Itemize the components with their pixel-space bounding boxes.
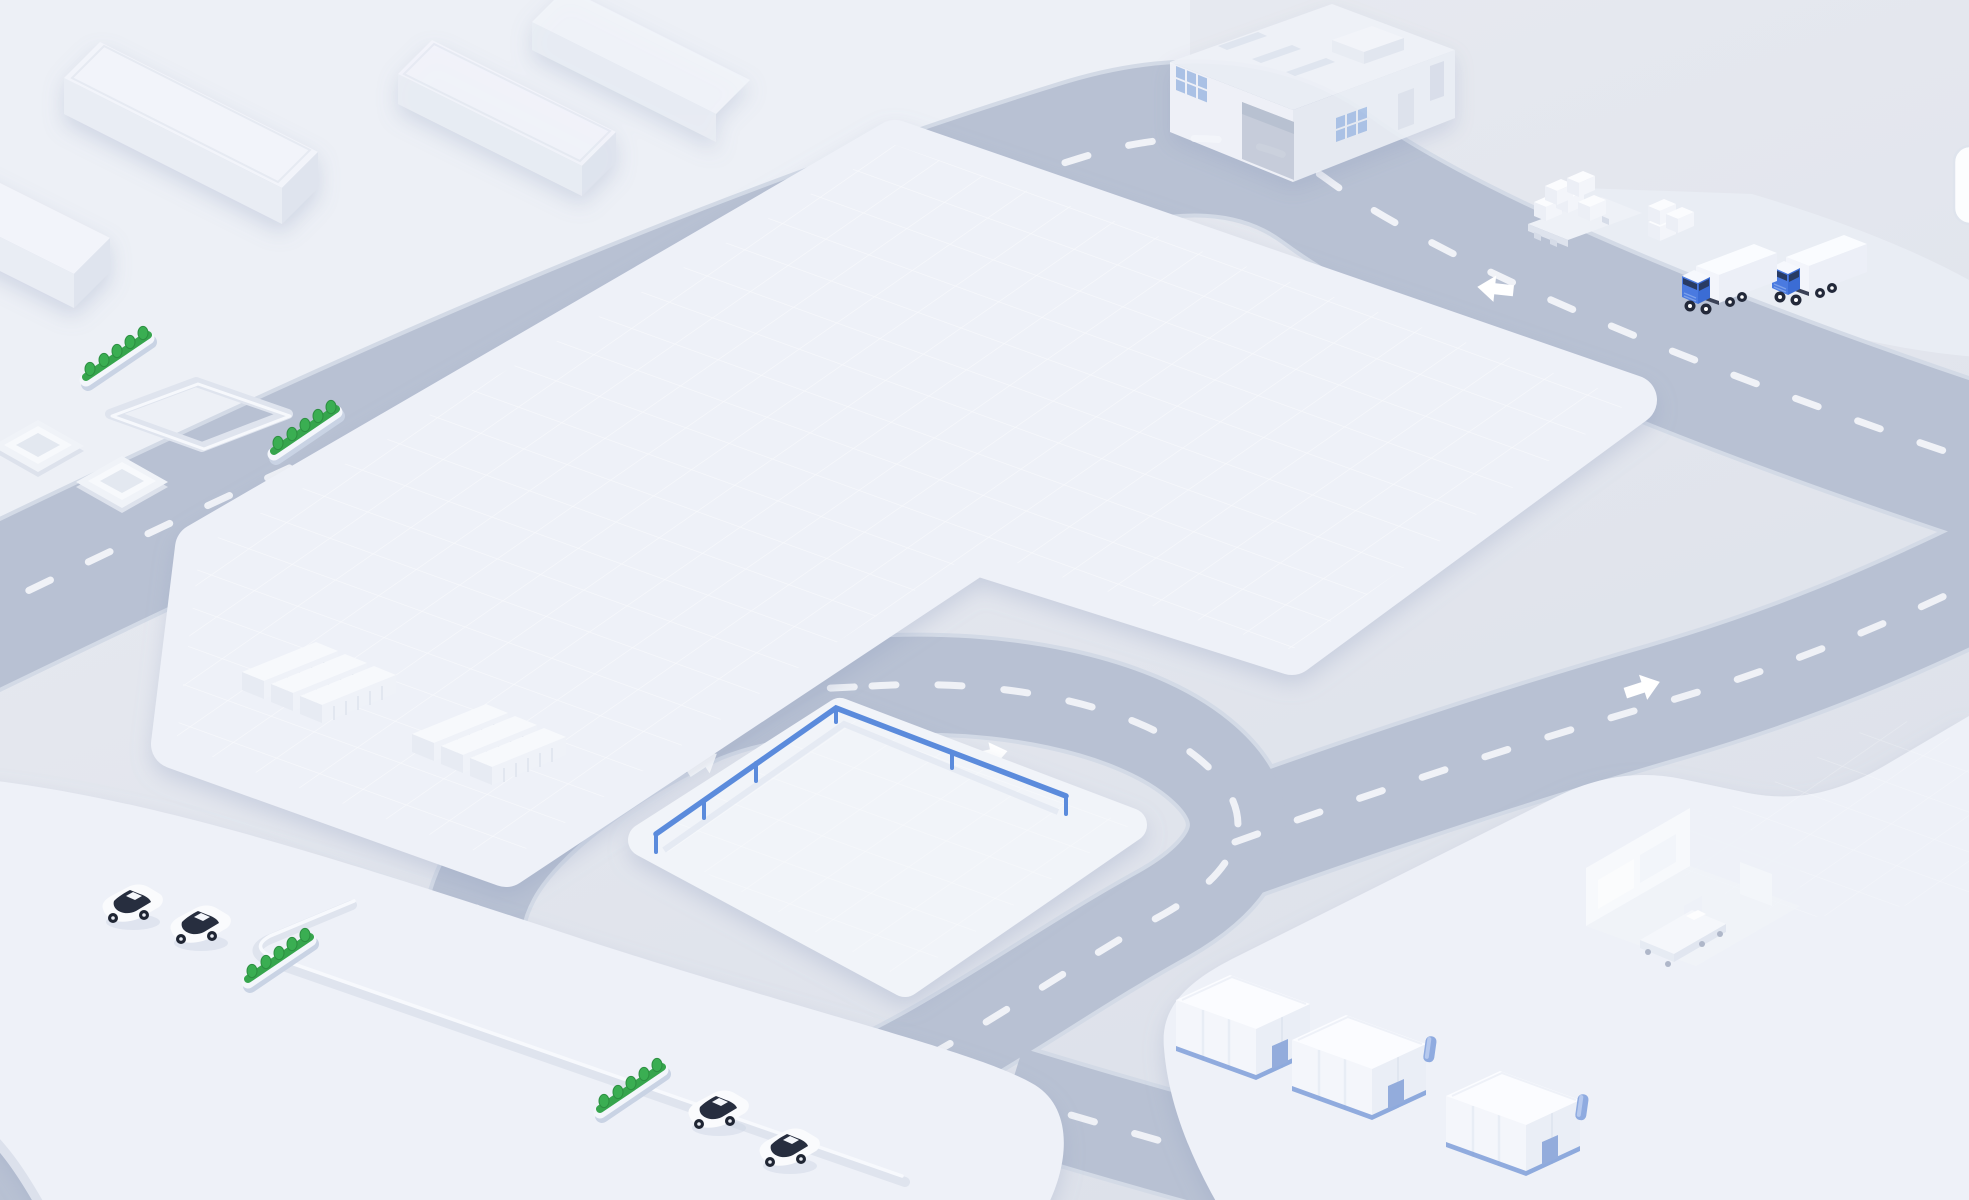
bed-wheel <box>1717 931 1723 937</box>
bed-wheel <box>1665 961 1671 967</box>
isometric-scene <box>0 0 1969 1200</box>
bed-wheel <box>1699 941 1705 947</box>
edge-card[interactable] <box>1954 146 1969 224</box>
bed-wheel <box>1645 949 1651 955</box>
factory-side-window <box>1430 61 1444 101</box>
scene-canvas <box>0 0 1969 1200</box>
factory-side-door <box>1398 88 1414 130</box>
